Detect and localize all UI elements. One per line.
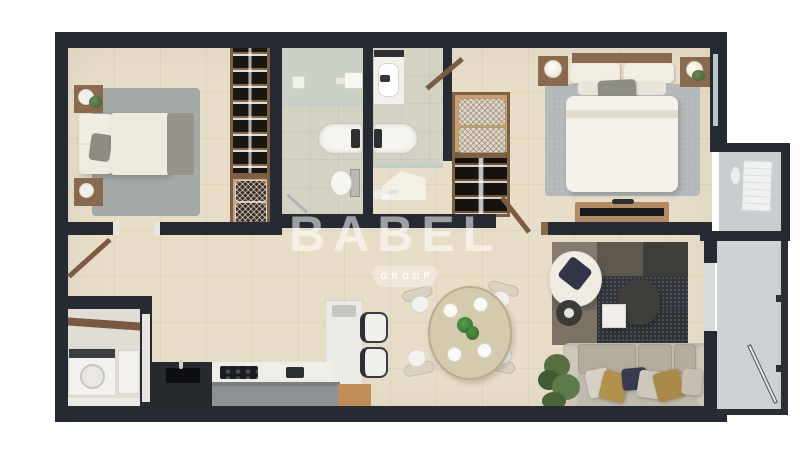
master-window-glass bbox=[713, 54, 718, 126]
balcony-floor bbox=[717, 241, 781, 411]
closet-cushion-2 bbox=[458, 127, 506, 153]
plate bbox=[443, 303, 458, 318]
wall-bedroom1-bottom-right bbox=[160, 222, 282, 235]
bathroom-1-glass-partition bbox=[283, 102, 363, 106]
washer-panel bbox=[69, 349, 115, 358]
bedroom1-lamp-bottom bbox=[79, 183, 94, 198]
washer-door bbox=[80, 364, 105, 389]
counter-appliance bbox=[286, 367, 304, 378]
utility-balcony-wall-right bbox=[781, 143, 790, 240]
balcony-door-frame bbox=[705, 263, 715, 331]
wall-bedroom2-living bbox=[548, 222, 712, 235]
master-duvet-fold bbox=[566, 110, 678, 118]
bar-stool bbox=[360, 347, 388, 378]
utility-balcony-item bbox=[730, 166, 741, 185]
wicker-basket-2 bbox=[235, 202, 267, 224]
wall-bottom bbox=[55, 406, 727, 422]
bathtub-2-fixtures bbox=[374, 129, 382, 148]
bedroom1-gray-pillow bbox=[88, 133, 113, 163]
rug-patch bbox=[643, 242, 688, 276]
bench-handle bbox=[612, 199, 634, 204]
bar-stool bbox=[360, 312, 388, 343]
bathroom1-sink bbox=[344, 72, 363, 89]
door-jamb bbox=[154, 222, 160, 235]
bedroom1-plant bbox=[89, 96, 102, 108]
bathtub-1-fixtures bbox=[351, 129, 360, 148]
washing-machine bbox=[68, 348, 116, 396]
plate bbox=[447, 347, 462, 362]
bedroom1-foot-blanket bbox=[167, 113, 194, 175]
balcony-wall-left-upper bbox=[704, 241, 717, 263]
wall-bedroom1-bottom-left bbox=[55, 222, 115, 235]
wall-wood-cap bbox=[541, 222, 548, 235]
railing-post bbox=[776, 295, 786, 302]
plate bbox=[473, 297, 488, 312]
plate bbox=[477, 343, 492, 358]
utility-cabinet bbox=[118, 350, 140, 394]
utility-balcony-wall-top bbox=[710, 143, 790, 152]
closet-hanging-clothes bbox=[452, 155, 510, 217]
peninsula-sink bbox=[332, 305, 356, 317]
ac-unit bbox=[741, 159, 773, 212]
vanity-counter-edge bbox=[374, 50, 404, 57]
toilet-1-bowl bbox=[330, 170, 352, 196]
sofa-pillow-gray bbox=[681, 368, 703, 396]
wall-below-bathrooms bbox=[270, 214, 496, 228]
rug-patch bbox=[597, 242, 643, 276]
island-faucet bbox=[179, 360, 183, 369]
living-plant bbox=[538, 352, 580, 410]
wall-utility-top bbox=[55, 296, 152, 309]
balcony-railing bbox=[781, 241, 788, 413]
side-table-top bbox=[564, 308, 574, 318]
master-nightstand-plant bbox=[692, 70, 705, 81]
utility-balcony-wall-bottom bbox=[700, 231, 790, 241]
wicker-basket-1 bbox=[235, 180, 267, 202]
balcony-railing-bottom bbox=[717, 409, 788, 415]
bedroom1-wardrobe bbox=[230, 44, 270, 176]
cooktop bbox=[220, 366, 258, 379]
master-lamp-left bbox=[544, 60, 562, 78]
wall-utility-face bbox=[142, 314, 150, 402]
island-sink bbox=[166, 368, 200, 383]
bathroom-2-glass-partition bbox=[373, 163, 443, 168]
vanity-faucet bbox=[380, 75, 390, 82]
door-jamb bbox=[113, 222, 119, 235]
closet-cushion-1 bbox=[458, 98, 506, 126]
small-table bbox=[602, 304, 626, 328]
bathroom1-sink-stem bbox=[336, 78, 345, 84]
wall-top bbox=[55, 32, 727, 48]
tv-on-bench bbox=[580, 208, 664, 216]
cabinet-run-edge bbox=[212, 382, 340, 386]
bedroom1-duvet bbox=[111, 113, 169, 175]
railing-post bbox=[776, 365, 786, 372]
shower-shelf bbox=[292, 76, 305, 89]
master-headboard bbox=[572, 53, 672, 63]
wall-interior-a bbox=[270, 47, 282, 215]
wall-interior-b bbox=[363, 47, 373, 215]
table-centerpiece-plant bbox=[466, 326, 479, 340]
floor-plan-rendering: BABEL GROUP bbox=[0, 0, 800, 455]
balcony-wall-left-lower bbox=[704, 331, 717, 409]
